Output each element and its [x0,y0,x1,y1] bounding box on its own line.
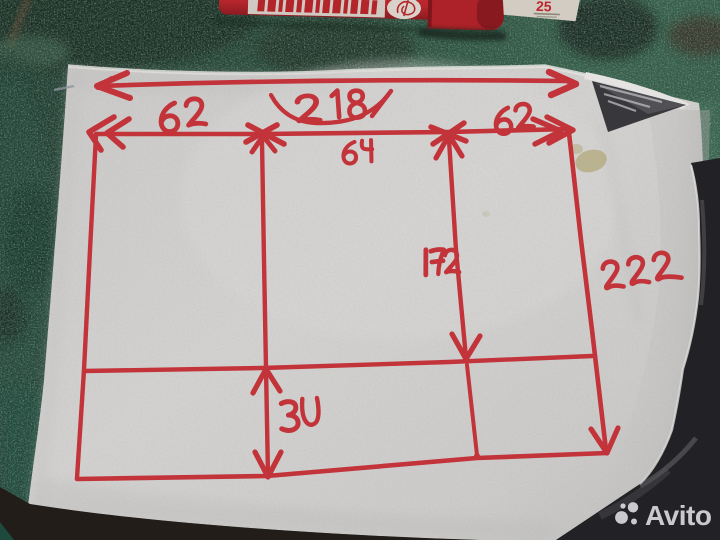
svg-text:Avito: Avito [645,500,712,531]
svg-text:25: 25 [536,0,552,14]
